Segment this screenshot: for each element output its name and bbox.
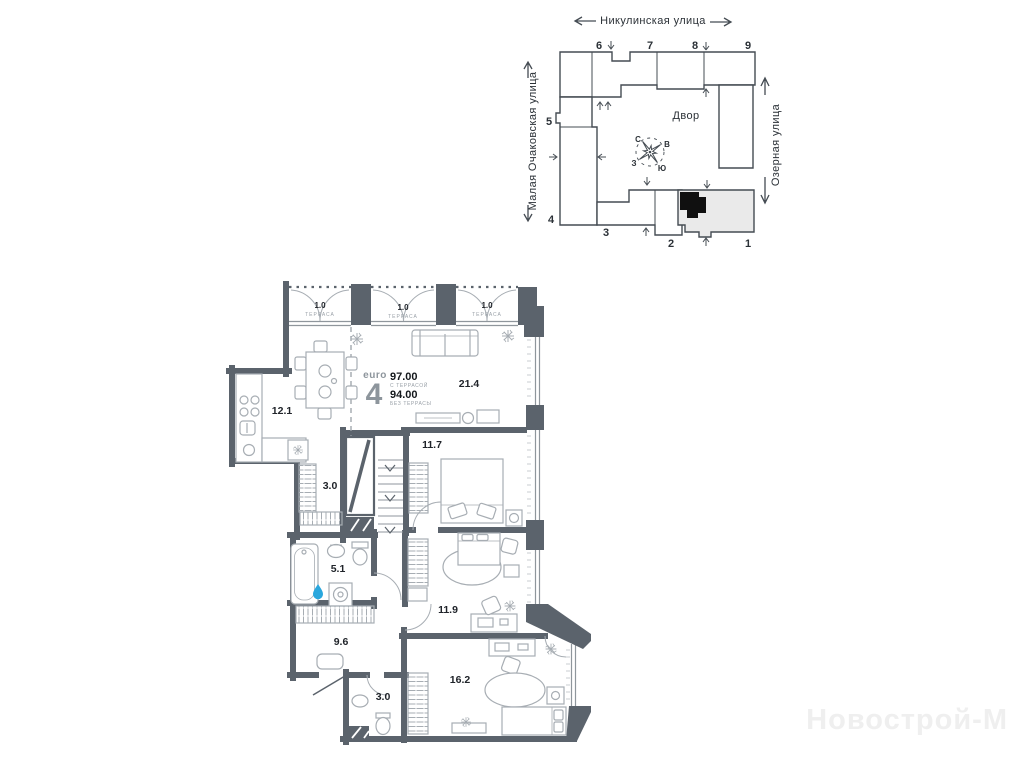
building-number-8: 8 bbox=[692, 40, 698, 52]
bedroom1-area-label: 11.7 bbox=[422, 439, 442, 451]
bathroom-area-label: 5.1 bbox=[331, 563, 346, 575]
compass-rose: С В З Ю bbox=[631, 134, 670, 173]
bedroom2-furniture bbox=[408, 533, 519, 632]
terrace1-name: ТЕРРАСА bbox=[305, 312, 335, 318]
building-number-4: 4 bbox=[548, 214, 555, 226]
toilet bbox=[352, 542, 368, 548]
wc-area-label: 3.0 bbox=[376, 691, 391, 703]
courtyard-label: Двор bbox=[672, 110, 699, 122]
terrace3-area: 1.0 bbox=[481, 301, 493, 310]
entry-door-leaf bbox=[313, 676, 345, 695]
wardrobe bbox=[409, 463, 428, 513]
terrace-labels: 1.0 ТЕРРАСА 1.0 ТЕРРАСА 1.0 ТЕРРАСА bbox=[305, 301, 502, 320]
site-east-wing bbox=[719, 85, 753, 168]
dining-table bbox=[295, 341, 357, 419]
street-left-label: Малая Очаковская улица bbox=[527, 71, 539, 210]
building-number-5: 5 bbox=[546, 116, 552, 128]
site-plan: Никулинская улица Малая Очаковская улица… bbox=[524, 15, 782, 250]
floorplan-canvas: Никулинская улица Малая Очаковская улица… bbox=[0, 0, 1014, 768]
wc-toilet bbox=[376, 718, 390, 735]
hall-storage bbox=[299, 464, 342, 525]
terrace1-area: 1.0 bbox=[314, 301, 326, 310]
hall-area-label: 3.0 bbox=[323, 480, 338, 492]
wardrobe bbox=[408, 539, 428, 586]
compass-south: Ю bbox=[658, 164, 666, 173]
street-right-label: Озерная улица bbox=[770, 103, 782, 186]
compass-west: З bbox=[631, 159, 636, 168]
unit-badge: euro 4 97.00 С ТЕРРАСОЙ 94.00 БЕЗ ТЕРРАС… bbox=[363, 370, 431, 411]
bedroom1-furniture bbox=[409, 459, 522, 526]
wc-sink bbox=[352, 695, 368, 707]
terrace3-name: ТЕРРАСА bbox=[472, 312, 502, 318]
stair-core bbox=[346, 437, 403, 533]
bathroom-fixtures bbox=[291, 542, 368, 606]
building-number-7: 7 bbox=[647, 40, 653, 52]
terrace2-name: ТЕРРАСА bbox=[388, 314, 418, 320]
building-number-6: 6 bbox=[596, 40, 602, 52]
building-number-9: 9 bbox=[745, 40, 751, 52]
bedroom3-furniture bbox=[408, 639, 566, 735]
unit-area-with-terrace: 97.00 bbox=[390, 371, 418, 383]
kitchen-area-label: 12.1 bbox=[272, 405, 293, 417]
kitchen-sink bbox=[244, 445, 255, 456]
terrace2-area: 1.0 bbox=[397, 303, 409, 312]
living-area-label: 21.4 bbox=[459, 378, 480, 390]
hallway-area-label: 9.6 bbox=[334, 636, 349, 648]
wardrobe bbox=[408, 673, 428, 734]
hallway-wardrobe bbox=[296, 606, 374, 623]
bedroom2-area-label: 11.9 bbox=[438, 604, 458, 616]
watermark: Новострой-М bbox=[806, 704, 1008, 736]
bath-sink bbox=[328, 545, 345, 558]
unit-with-terrace-caption: С ТЕРРАСОЙ bbox=[390, 381, 428, 389]
site-south-wing bbox=[597, 190, 682, 235]
building-number-2: 2 bbox=[668, 238, 674, 250]
floorplan-page: Никулинская улица Малая Очаковская улица… bbox=[0, 0, 1014, 768]
site-buildings bbox=[556, 52, 755, 237]
rug bbox=[485, 673, 545, 707]
building-number-1: 1 bbox=[745, 238, 751, 250]
unit-rooms-count: 4 bbox=[366, 378, 383, 411]
unit-without-terrace-caption: БЕЗ ТЕРРАСЫ bbox=[390, 401, 432, 407]
unit-area-without-terrace: 94.00 bbox=[390, 389, 418, 401]
street-top-label: Никулинская улица bbox=[600, 15, 706, 27]
apartment-plan: 12.1 21.4 11.7 3.0 5.1 9.6 11.9 3.0 16.2… bbox=[229, 284, 591, 742]
compass-east: В bbox=[664, 140, 670, 149]
site-west-wing bbox=[556, 97, 597, 225]
building-number-3: 3 bbox=[603, 227, 609, 239]
bedroom3-area-label: 16.2 bbox=[450, 674, 471, 686]
stair-direction-arrows bbox=[385, 465, 395, 533]
compass-north: С bbox=[635, 135, 641, 144]
